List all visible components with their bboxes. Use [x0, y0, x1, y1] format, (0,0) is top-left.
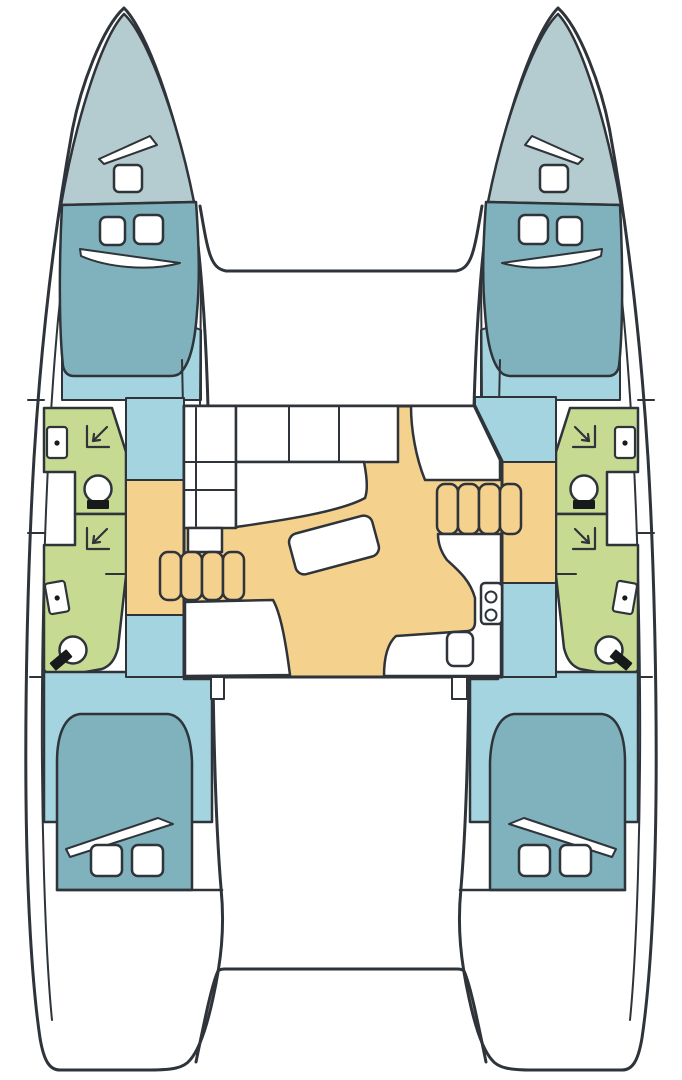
port-corridor-fwd [126, 398, 184, 480]
settee-back-band [236, 406, 398, 462]
berth-pillow [91, 845, 122, 876]
berth-pillow [134, 215, 163, 244]
washbasin [45, 580, 70, 614]
salon-counter [185, 600, 290, 676]
step-tread [458, 484, 479, 534]
aft-platform-line [196, 969, 486, 1062]
washbasin [47, 427, 67, 458]
galley-sink [447, 632, 473, 666]
cockpit-door-jamb [452, 677, 467, 699]
deck-hatch [114, 165, 142, 192]
inner-wall-line [200, 274, 201, 404]
toilet-seat [87, 500, 109, 509]
step-tread [202, 552, 223, 600]
basin-drain-dot [54, 440, 59, 445]
step-tread [479, 484, 500, 534]
step-tread [181, 552, 202, 600]
starboard-companionway-steps [437, 484, 521, 534]
aft-berth [57, 714, 192, 890]
cockpit-door-jamb [211, 677, 224, 699]
forward-berth [60, 202, 199, 376]
catamaran-floorplan [0, 0, 682, 1080]
port-corridor-aft [126, 615, 184, 677]
stove-burner [486, 592, 497, 603]
port-companionway-steps [160, 552, 244, 600]
berth-pillow [100, 217, 125, 245]
galley-stove [481, 583, 502, 624]
foredeck-beam-line [200, 206, 482, 271]
step-tread [223, 552, 244, 600]
plan-root [26, 8, 656, 1070]
berth-pillow [132, 845, 163, 876]
stove-burner [486, 610, 497, 621]
step-tread [500, 484, 521, 534]
settee-foot [188, 528, 222, 552]
toilet [85, 476, 112, 510]
step-tread [160, 552, 181, 600]
starboard-corridor-aft [498, 583, 556, 677]
step-tread [437, 484, 458, 534]
